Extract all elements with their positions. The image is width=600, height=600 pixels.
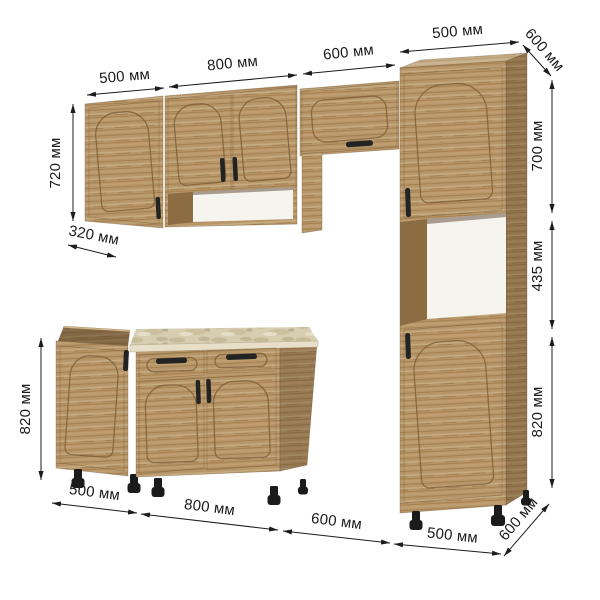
door-handle: [405, 333, 411, 359]
base-800-drawer-left: [139, 351, 204, 379]
dimension-label: 500 мм: [431, 21, 483, 42]
dim-tall-width-top: 500 мм: [400, 21, 519, 52]
door-handle: [206, 379, 211, 403]
dimension-line: [141, 514, 278, 530]
base-800-drawer-right: [207, 348, 276, 374]
diagram-canvas: 500 мм 800 мм 600 мм 500 мм 600 мм 700 м…: [0, 0, 600, 600]
dim-wall-height: 720 мм: [47, 104, 73, 221]
cabinet-leg: [298, 479, 308, 495]
dim-tall-upper-height: 700 мм: [529, 80, 552, 213]
dimension-line: [87, 88, 164, 95]
dimension-label: 800 мм: [206, 53, 258, 75]
tall-cabinet-side-shade: [506, 53, 527, 505]
drawer-handle: [226, 353, 257, 360]
wall-cabinet-500-door: [89, 101, 159, 224]
dimension-line: [283, 531, 390, 543]
dimension-label: 320 мм: [67, 222, 120, 248]
base-cabinet-800: [130, 327, 318, 505]
cabinet-leg: [152, 478, 165, 497]
dimension-label: 820 мм: [17, 383, 34, 434]
dimension-label: 720 мм: [47, 137, 64, 188]
hood-cabinet-600-side-panel: [302, 152, 322, 233]
dim-tall-lower-height: 820 мм: [529, 337, 552, 488]
dimension-line: [303, 65, 395, 74]
cabinet-leg: [268, 486, 281, 505]
kitchen-set-dimension-diagram: 500 мм 800 мм 600 мм 500 мм 600 мм 700 м…: [0, 0, 600, 600]
door-handle: [196, 380, 201, 404]
hood-cabinet-600: [300, 81, 399, 233]
dimension-line: [52, 503, 137, 513]
base-800-door-right: [207, 374, 276, 470]
dimension-line: [394, 544, 501, 554]
furniture-set: [56, 53, 531, 530]
dimension-line: [400, 42, 519, 52]
door-handle: [405, 188, 411, 217]
dim-tall-width-bottom: 500 мм: [394, 524, 501, 554]
dimension-label: 435 мм: [529, 240, 546, 291]
tall-cabinet-niche-back: [427, 213, 506, 319]
dim-base-left-width: 500 мм: [52, 481, 137, 513]
dim-base-height: 820 мм: [17, 338, 41, 480]
dimension-label: 500 мм: [68, 481, 121, 504]
dim-tall-niche-height: 435 мм: [529, 221, 552, 329]
base-cabinet-sink-500: [56, 326, 141, 493]
dim-base-mid-width: 800 мм: [141, 496, 278, 530]
base-800-side-shade: [280, 343, 317, 471]
tall-cabinet-lower-door: [404, 322, 502, 503]
wall-cabinet-800: [165, 85, 297, 227]
dimension-label: 820 мм: [529, 386, 546, 437]
dim-appliance-gap-width: 600 мм: [283, 510, 390, 543]
tall-cabinet-500: [400, 53, 531, 530]
drawer-handle: [156, 357, 187, 364]
tall-cabinet-upper-door: [404, 67, 502, 218]
dimension-label: 600 мм: [322, 41, 375, 63]
dimension-label: 500 мм: [98, 66, 150, 87]
dimension-line: [169, 75, 297, 87]
dim-hood-width: 600 мм: [303, 41, 395, 74]
wall-cabinet-800-shelf-side: [168, 192, 193, 225]
dimension-label: 600 мм: [310, 510, 363, 533]
dim-wall-left-width: 500 мм: [87, 66, 164, 95]
dim-tall-depth-top: 600 мм: [521, 25, 567, 76]
cabinet-leg: [410, 511, 423, 530]
tall-cabinet-niche-side: [400, 219, 427, 326]
cabinet-leg: [491, 505, 505, 526]
wall-cabinet-500: [85, 96, 163, 228]
dimension-label: 800 мм: [183, 496, 236, 519]
dimension-label: 500 мм: [426, 524, 479, 546]
dim-wall-depth: 320 мм: [67, 222, 120, 257]
dim-wall-mid-width: 800 мм: [169, 53, 297, 87]
wall-cabinet-800-door-right: [233, 87, 296, 190]
dimension-label: 700 мм: [529, 120, 546, 171]
